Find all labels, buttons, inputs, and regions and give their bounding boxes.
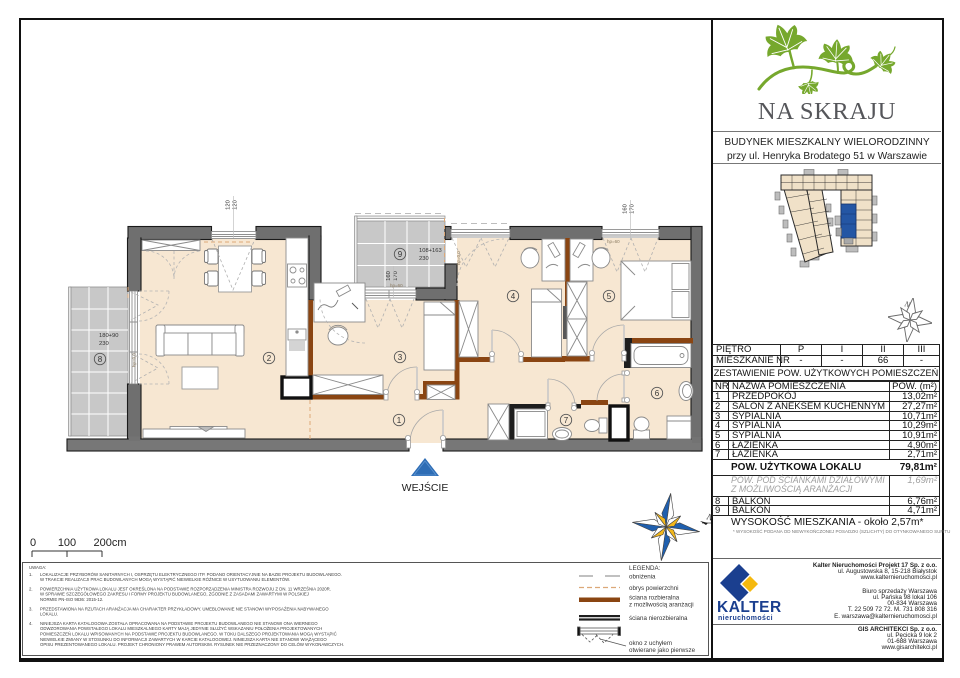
svg-text:obniżenia: obniżenia — [629, 574, 656, 581]
svg-text:okno z uchyłem: okno z uchyłem — [629, 640, 672, 647]
svg-text:obrys powierzchni: obrys powierzchni — [629, 585, 679, 592]
svg-text:8: 8 — [98, 355, 103, 364]
svg-text:120: 120 — [226, 200, 232, 210]
svg-text:WEJŚCIE: WEJŚCIE — [402, 481, 449, 494]
svg-text:180+90: 180+90 — [99, 333, 119, 339]
svg-text:z możliwością aranżacji: z możliwością aranżacji — [629, 602, 694, 609]
svg-text:nieruchomości: nieruchomości — [718, 615, 773, 622]
svg-text:2: 2 — [267, 354, 272, 363]
svg-text:3: 3 — [398, 353, 403, 362]
svg-text:230: 230 — [99, 341, 109, 347]
svg-text:5: 5 — [607, 292, 612, 301]
svg-text:160: 160 — [386, 271, 392, 281]
svg-text:160: 160 — [623, 204, 629, 214]
svg-text:230: 230 — [419, 256, 429, 262]
svg-text:200cm: 200cm — [93, 537, 126, 549]
svg-text:1: 1 — [397, 416, 402, 425]
svg-text:ściana rozbieralna: ściana rozbieralna — [629, 595, 680, 602]
svg-text:hp=0,0: hp=0,0 — [132, 353, 137, 367]
svg-text:hp=60: hp=60 — [390, 283, 403, 288]
svg-text:100: 100 — [58, 537, 76, 549]
svg-text:6: 6 — [655, 389, 660, 398]
svg-text:otwierane jako pierwsze: otwierane jako pierwsze — [629, 647, 696, 654]
svg-text:KALTER: KALTER — [717, 599, 782, 616]
svg-text:108+163: 108+163 — [419, 248, 442, 254]
svg-text:7: 7 — [564, 416, 569, 425]
svg-text:4: 4 — [511, 292, 516, 301]
svg-text:0: 0 — [30, 537, 36, 549]
svg-text:9: 9 — [398, 250, 403, 259]
svg-text:hp=0,0: hp=0,0 — [456, 251, 461, 265]
svg-text:170: 170 — [393, 271, 399, 281]
svg-text:ściana nierozbieralna: ściana nierozbieralna — [629, 615, 688, 622]
svg-text:hp=60: hp=60 — [607, 239, 620, 244]
svg-text:LEGENDA:: LEGENDA: — [629, 565, 661, 572]
